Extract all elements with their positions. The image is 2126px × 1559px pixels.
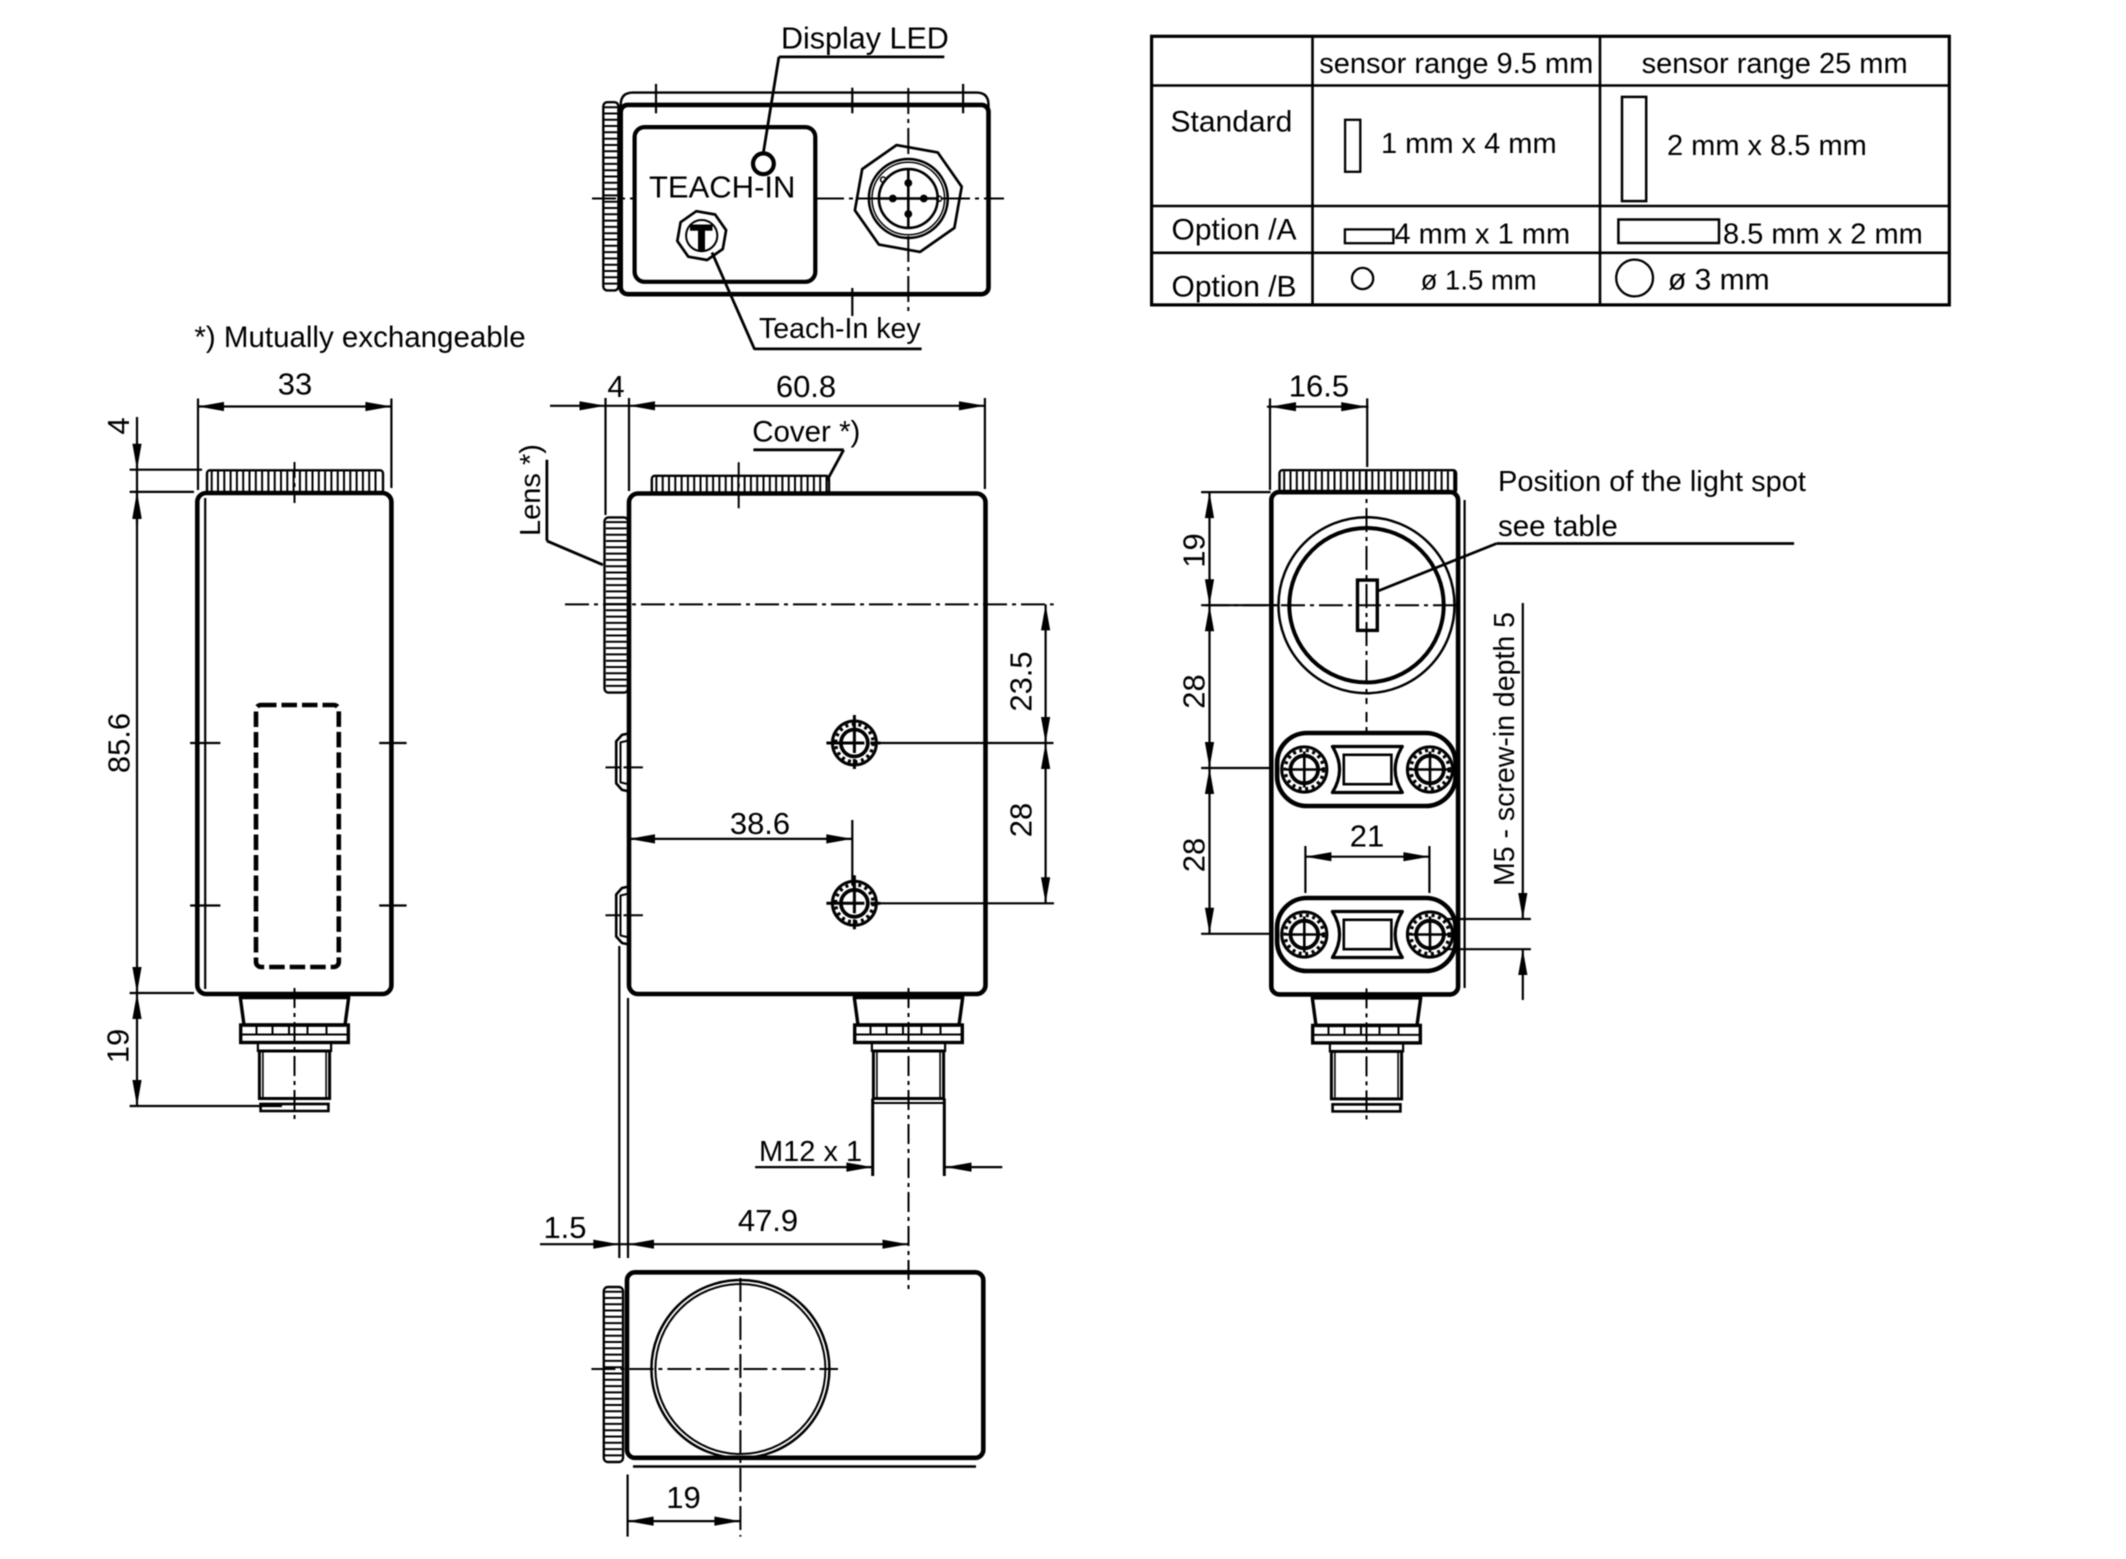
svg-text:Option /B: Option /B [1172,271,1297,304]
svg-text:4 mm x 1 mm: 4 mm x 1 mm [1395,219,1571,251]
svg-text:1.5: 1.5 [543,1210,586,1245]
svg-text:*) Mutually exchangeable: *) Mutually exchangeable [194,321,525,354]
svg-text:M5 - screw-in depth 5: M5 - screw-in depth 5 [1489,612,1521,886]
svg-text:Option /A: Option /A [1172,214,1297,247]
svg-text:28: 28 [1177,838,1212,872]
svg-text:TEACH-IN: TEACH-IN [649,170,795,205]
svg-text:19: 19 [101,1029,136,1063]
svg-text:33: 33 [278,367,312,402]
svg-text:Standard: Standard [1171,106,1293,139]
svg-text:28: 28 [1177,674,1212,708]
svg-text:sensor range 25 mm: sensor range 25 mm [1642,48,1908,80]
svg-text:60.8: 60.8 [776,369,836,404]
svg-text:19: 19 [666,1480,700,1515]
svg-text:see table: see table [1498,510,1618,543]
svg-text:2 mm x 8.5 mm: 2 mm x 8.5 mm [1667,130,1867,162]
svg-text:19: 19 [1177,533,1212,567]
svg-text:Lens *): Lens *) [515,444,547,536]
svg-text:4: 4 [101,417,136,434]
svg-text:sensor range 9.5 mm: sensor range 9.5 mm [1319,48,1593,80]
svg-text:28: 28 [1004,803,1039,837]
svg-text:23.5: 23.5 [1004,651,1039,711]
svg-text:Display LED: Display LED [781,21,949,55]
svg-text:Cover *): Cover *) [752,415,860,448]
svg-text:8.5 mm x 2 mm: 8.5 mm x 2 mm [1723,219,1923,251]
svg-text:85.6: 85.6 [102,713,137,773]
svg-text:ø 3 mm: ø 3 mm [1668,264,1770,297]
svg-text:Position of the light spot: Position of the light spot [1498,466,1806,498]
svg-text:1 mm x 4 mm: 1 mm x 4 mm [1381,128,1557,160]
svg-text:47.9: 47.9 [738,1203,798,1238]
svg-text:16.5: 16.5 [1289,369,1349,404]
svg-text:21: 21 [1350,819,1384,854]
svg-text:ø 1.5 mm: ø 1.5 mm [1421,265,1537,296]
svg-text:4: 4 [607,369,624,404]
svg-text:38.6: 38.6 [730,806,790,841]
svg-text:Teach-In key: Teach-In key [759,313,921,345]
